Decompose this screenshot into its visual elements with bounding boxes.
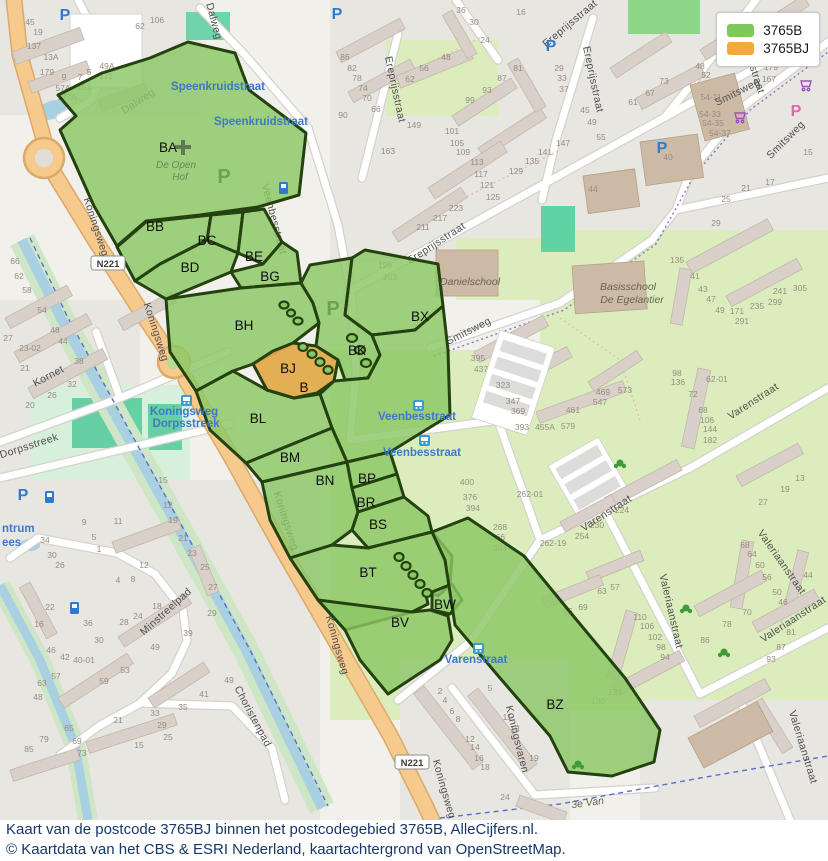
house-number: 39: [183, 628, 193, 638]
region-code-label: BZ: [546, 697, 563, 712]
house-number: 394: [466, 503, 480, 513]
map-legend: 3765B3765BJ: [716, 12, 820, 67]
house-number: 30: [47, 550, 57, 560]
house-number: 61: [628, 97, 638, 107]
house-number: 25: [721, 194, 731, 204]
house-number: 99: [465, 95, 475, 105]
house-number: 376: [463, 492, 477, 502]
house-number: 42: [60, 652, 70, 662]
house-number: 87: [776, 642, 786, 652]
house-number: 223: [449, 203, 463, 213]
house-number: 8: [131, 574, 136, 584]
fuel-station-icon: [45, 491, 54, 503]
region-code-label: BH: [235, 318, 254, 333]
legend-item: 3765B: [727, 23, 809, 38]
house-number: 16: [34, 619, 44, 629]
house-number: 437: [474, 364, 488, 374]
region-code-label: BX: [411, 309, 429, 324]
house-number: 67: [645, 88, 655, 98]
region-code-label: BG: [260, 269, 280, 284]
map-canvas: 451913713A17997549A17157A151177A62106666…: [0, 0, 828, 820]
house-number: 117: [474, 169, 488, 179]
poi-label: P: [18, 487, 29, 504]
poi-label: De Open: [156, 160, 196, 171]
house-number: 469: [596, 387, 610, 397]
house-number: 93: [482, 85, 492, 95]
house-number: 78: [352, 73, 362, 83]
house-number: 395: [471, 353, 485, 363]
poi-label: P: [60, 7, 71, 24]
house-number: 22: [45, 602, 55, 612]
house-number: 48: [441, 52, 451, 62]
house-number: 62: [14, 271, 24, 281]
bus-stop-label: Dorpsstreek: [152, 418, 220, 430]
poi-label: Hof: [172, 172, 189, 183]
region-code-label: BA: [159, 140, 177, 155]
house-number: 45: [25, 17, 35, 27]
house-number: 25: [163, 732, 173, 742]
house-number: 5: [488, 683, 493, 693]
house-number: 455A: [535, 422, 555, 432]
region-code-label: BT: [359, 565, 376, 580]
house-number: 21: [178, 533, 188, 543]
house-number: 24: [133, 611, 143, 621]
house-number: 305: [793, 283, 807, 293]
house-number: 573: [618, 385, 632, 395]
house-number: 46: [778, 597, 788, 607]
region-code-label: BC: [198, 233, 217, 248]
house-number: 149: [407, 120, 421, 130]
house-number: 58: [22, 285, 32, 295]
house-number: 347: [506, 396, 520, 406]
house-number: 48: [50, 325, 60, 335]
house-number: 235: [750, 301, 764, 311]
house-number: 54-35: [702, 118, 724, 128]
house-number: 64: [747, 549, 757, 559]
house-number: 241: [773, 286, 787, 296]
house-number: 268: [493, 522, 507, 532]
house-number: 323: [496, 380, 510, 390]
house-number: 30: [469, 17, 479, 27]
poi-label: P: [332, 6, 343, 23]
caption-line2: © Kaartdata van het CBS & ESRI Nederland…: [0, 840, 828, 860]
house-number: 63: [37, 678, 47, 688]
house-number: 43: [698, 284, 708, 294]
house-number: 547: [593, 397, 607, 407]
house-number: 60: [755, 560, 765, 570]
house-number: 65: [64, 723, 74, 733]
house-number: 48: [33, 692, 43, 702]
house-number: 136: [671, 377, 685, 387]
house-number: 21: [741, 183, 751, 193]
house-number: 86: [700, 635, 710, 645]
house-number: 35: [178, 702, 188, 712]
house-number: 16: [516, 7, 526, 17]
bus-stop-label: Koningsweg: [150, 406, 218, 418]
house-number: 163: [381, 146, 395, 156]
house-number: 85: [24, 744, 34, 754]
house-number: 101: [445, 126, 459, 136]
house-number: 56: [419, 63, 429, 73]
svg-text:N221: N221: [97, 259, 120, 270]
house-number: 15: [158, 475, 168, 485]
house-number: 44: [588, 184, 598, 194]
house-number: 6: [450, 706, 455, 716]
legend-item: 3765BJ: [727, 41, 809, 56]
poi-label: Basisschool: [600, 281, 657, 293]
region-code-label: BL: [250, 411, 267, 426]
house-number: 27: [3, 333, 13, 343]
region-code-label: BW: [434, 597, 456, 612]
house-number: 27: [208, 582, 218, 592]
poi-label: P: [326, 298, 339, 320]
house-number: 19: [168, 515, 178, 525]
house-number: 44: [803, 570, 813, 580]
house-number: 63: [597, 586, 607, 596]
house-number: 171: [730, 306, 744, 316]
house-number: 66: [371, 104, 381, 114]
house-number: 147: [556, 138, 570, 148]
caption-bar: Kaart van de postcode 3765BJ binnen het …: [0, 820, 828, 861]
house-number: 461: [566, 405, 580, 415]
house-number: 68: [698, 405, 708, 415]
house-number: 73: [659, 76, 669, 86]
house-number: 29: [554, 63, 564, 73]
house-number: 23-02: [19, 343, 41, 353]
house-number: 217: [433, 213, 447, 223]
legend-label: 3765B: [763, 23, 802, 38]
house-number: 46: [46, 645, 56, 655]
house-number: 81: [513, 63, 523, 73]
house-number: 55: [596, 132, 606, 142]
house-number: 30: [94, 635, 104, 645]
poi-label: P: [657, 140, 668, 157]
house-number: 52: [701, 70, 711, 80]
region-code-label: BP: [358, 471, 376, 486]
road-shield: N221: [91, 256, 125, 270]
house-number: 262-01: [517, 489, 544, 499]
region-code-label: BK: [348, 343, 366, 358]
house-number: 41: [199, 689, 209, 699]
house-number: 21: [20, 363, 30, 373]
house-number: 56: [762, 572, 772, 582]
house-number: 70: [742, 607, 752, 617]
legend-label: 3765BJ: [763, 41, 809, 56]
house-number: 137: [27, 41, 41, 51]
house-number: 21: [113, 715, 123, 725]
house-number: 8: [456, 714, 461, 724]
house-number: 29: [207, 608, 217, 618]
house-number: 29: [711, 218, 721, 228]
house-number: 369: [511, 406, 525, 416]
poi-label: Danielschool: [440, 276, 501, 288]
bus-stop-label: Varenstraat: [445, 654, 508, 666]
svg-text:N221: N221: [401, 758, 424, 769]
house-number: 121: [480, 180, 494, 190]
house-number: 93: [766, 654, 776, 664]
house-number: 45: [580, 105, 590, 115]
house-number: 82: [347, 63, 357, 73]
house-number: 19: [33, 27, 43, 37]
house-number: 106: [640, 621, 654, 631]
house-number: 50: [772, 587, 782, 597]
bus-stop-label: Veenbesstraat: [378, 411, 456, 423]
house-number: 19: [780, 484, 790, 494]
house-number: 26: [47, 390, 57, 400]
house-number: 19: [529, 753, 539, 763]
poi-label: P: [546, 38, 557, 55]
house-number: 57: [610, 582, 620, 592]
house-number: 299: [768, 297, 782, 307]
region-code-label: BS: [369, 517, 387, 532]
house-number: 94: [660, 652, 670, 662]
house-number: 59: [99, 676, 109, 686]
legend-swatch: [727, 42, 754, 55]
house-number: 62-01: [706, 374, 728, 384]
house-number: 211: [416, 222, 430, 232]
road-shield: N221: [395, 755, 429, 769]
house-number: 182: [703, 435, 717, 445]
house-number: 36: [83, 618, 93, 628]
house-number: 73: [77, 748, 87, 758]
house-number: 98: [656, 642, 666, 652]
house-number: 47: [706, 294, 716, 304]
house-number: 13A: [43, 52, 58, 62]
house-number: 33: [150, 708, 160, 718]
house-number: 15: [134, 740, 144, 750]
house-number: 40-01: [73, 655, 95, 665]
house-number: 11: [114, 516, 123, 526]
house-number: 393: [515, 422, 529, 432]
house-number: 1: [97, 544, 102, 554]
region-code-label: BJ: [280, 361, 296, 376]
house-number: 44: [58, 336, 68, 346]
house-number: 69: [72, 736, 82, 746]
region-code-label: B: [299, 380, 308, 395]
region-code-label: BV: [391, 615, 409, 630]
region-code-label: BE: [245, 249, 263, 264]
house-number: 57: [51, 671, 61, 681]
house-number: 53: [120, 665, 130, 675]
house-number: 20: [25, 400, 35, 410]
house-number: 54-37: [709, 128, 731, 138]
house-number: 41: [690, 271, 700, 281]
house-number: 7: [78, 72, 83, 82]
house-number: 69: [578, 602, 588, 612]
house-number: 113: [470, 157, 484, 167]
house-number: 129: [509, 166, 523, 176]
house-number: 86: [340, 52, 350, 62]
house-number: 9: [82, 517, 87, 527]
house-number: 106: [150, 15, 164, 25]
house-number: 400: [460, 477, 474, 487]
house-number: 109: [456, 147, 470, 157]
house-number: 49: [224, 675, 234, 685]
house-number: 27: [758, 497, 768, 507]
house-number: 102: [648, 632, 662, 642]
caption-line1: Kaart van de postcode 3765BJ binnen het …: [0, 820, 828, 840]
house-number: 26: [55, 560, 65, 570]
region-code-label: BN: [316, 473, 335, 488]
house-number: 25: [200, 562, 210, 572]
house-number: 4: [443, 695, 448, 705]
house-number: 18: [480, 762, 490, 772]
house-number: 34: [40, 535, 50, 545]
house-number: 49: [150, 642, 160, 652]
poi-label: De Egelantier: [600, 294, 664, 306]
house-number: 33: [557, 73, 567, 83]
house-number: 13: [795, 473, 805, 483]
house-number: 79: [39, 734, 49, 744]
house-number: 579: [561, 421, 575, 431]
house-number: 49: [715, 305, 725, 315]
house-number: 5: [92, 532, 97, 542]
house-number: 15: [803, 147, 813, 157]
house-number: 32: [67, 379, 77, 389]
house-number: 74: [358, 83, 368, 93]
bus-stop-label: Speenkruidstraat: [171, 81, 265, 93]
postcode-map-page: 451913713A17997549A17157A151177A62106666…: [0, 0, 828, 861]
house-number: 37: [559, 84, 569, 94]
house-number: 72: [688, 389, 698, 399]
house-number: 141: [538, 147, 552, 157]
house-number: 24: [500, 792, 510, 802]
house-number: 78: [722, 619, 732, 629]
house-number: 262-19: [540, 538, 567, 548]
house-number: 54: [37, 305, 47, 315]
house-number: 135: [670, 255, 684, 265]
house-number: 49: [587, 117, 597, 127]
house-number: 38: [74, 356, 84, 366]
bus-stop-label: Veenbesstraat: [383, 447, 461, 459]
label-fragment: ees: [2, 537, 21, 549]
house-number: 66: [10, 256, 20, 266]
house-number: 17: [765, 177, 775, 187]
region-code-label: BM: [280, 450, 300, 465]
house-number: 70: [362, 93, 372, 103]
label-fragment: ntrum: [2, 523, 35, 535]
house-number: 36: [456, 5, 466, 15]
house-number: 90: [338, 110, 348, 120]
house-number: 125: [486, 192, 500, 202]
fuel-station-icon: [70, 602, 79, 614]
legend-swatch: [727, 24, 754, 37]
house-number: 23: [187, 548, 197, 558]
house-number: 28: [119, 617, 129, 627]
house-number: 179: [40, 67, 54, 77]
region-code-label: BB: [146, 219, 164, 234]
poi-label: P: [791, 103, 802, 120]
house-number: 29: [157, 720, 167, 730]
house-number: 87: [497, 73, 507, 83]
region-code-label: BR: [357, 495, 376, 510]
house-number: 62: [405, 74, 415, 84]
bus-stop-label: Speenkruidstraat: [214, 116, 308, 128]
house-number: 14: [470, 742, 480, 752]
region-code-label: BD: [181, 260, 200, 275]
house-number: 4: [116, 575, 121, 585]
house-number: 12: [163, 500, 173, 510]
house-number: 62: [135, 21, 145, 31]
fuel-station-icon: [279, 182, 288, 194]
house-number: 24: [480, 35, 490, 45]
house-number: 135: [525, 156, 539, 166]
house-number: 144: [703, 424, 717, 434]
house-number: 291: [735, 316, 749, 326]
house-number: 9: [62, 72, 67, 82]
poi-label: P: [217, 166, 230, 188]
house-number: 5: [87, 67, 92, 77]
house-number: 12: [139, 560, 149, 570]
